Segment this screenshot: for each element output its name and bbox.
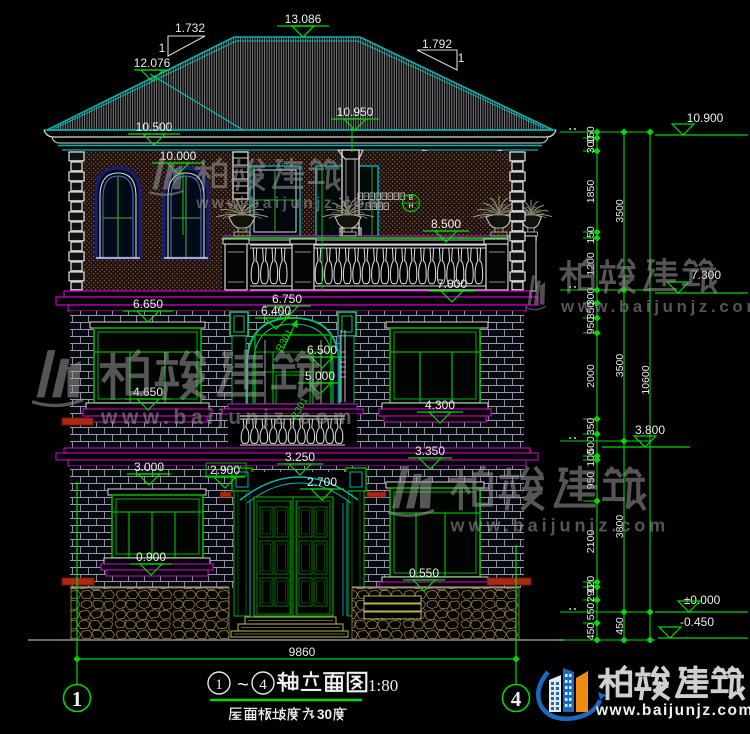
svg-text:1: 1 bbox=[458, 51, 465, 65]
svg-text:3.000: 3.000 bbox=[134, 460, 164, 474]
svg-text:www.baijunjz.com: www.baijunjz.com bbox=[560, 297, 750, 316]
svg-text:www.baijunjz.com: www.baijunjz.com bbox=[450, 515, 670, 535]
svg-text:10.500: 10.500 bbox=[136, 120, 173, 134]
svg-text:4: 4 bbox=[511, 687, 522, 711]
svg-text:±0.000: ±0.000 bbox=[684, 593, 721, 607]
svg-text:100: 100 bbox=[585, 449, 597, 467]
svg-text:550: 550 bbox=[585, 603, 597, 621]
svg-text:1: 1 bbox=[215, 677, 223, 693]
svg-text:450: 450 bbox=[614, 617, 626, 635]
svg-text:1:80: 1:80 bbox=[368, 676, 398, 695]
svg-text:30: 30 bbox=[317, 707, 332, 722]
svg-text:300: 300 bbox=[585, 136, 597, 154]
svg-text:6.650: 6.650 bbox=[133, 297, 163, 311]
svg-text:9860: 9860 bbox=[289, 645, 316, 659]
svg-text:3.800: 3.800 bbox=[635, 423, 665, 437]
svg-text:-0.450: -0.450 bbox=[680, 615, 714, 629]
svg-text:1: 1 bbox=[72, 687, 83, 711]
svg-text:1.792: 1.792 bbox=[422, 37, 452, 51]
svg-text:450: 450 bbox=[585, 623, 597, 641]
svg-text:10.000: 10.000 bbox=[160, 149, 197, 163]
svg-text:8.500: 8.500 bbox=[431, 217, 461, 231]
svg-text:2.700: 2.700 bbox=[307, 475, 337, 489]
svg-text:3.250: 3.250 bbox=[285, 450, 315, 464]
svg-text:7.000: 7.000 bbox=[437, 277, 467, 291]
svg-text:12.076: 12.076 bbox=[134, 56, 171, 70]
svg-text:290: 290 bbox=[585, 585, 597, 603]
svg-text:6.400: 6.400 bbox=[261, 304, 291, 318]
svg-text:10600: 10600 bbox=[640, 365, 652, 394]
svg-text:10.950: 10.950 bbox=[337, 105, 374, 119]
svg-text:~: ~ bbox=[237, 674, 249, 696]
svg-text:150: 150 bbox=[585, 226, 597, 244]
svg-text:1: 1 bbox=[159, 41, 166, 55]
svg-text:H: H bbox=[408, 203, 413, 210]
svg-text:10.900: 10.900 bbox=[687, 111, 724, 125]
svg-text:www.baijunjz.com: www.baijunjz.com bbox=[100, 406, 356, 429]
svg-text:0.900: 0.900 bbox=[136, 550, 166, 564]
svg-text:3.350: 3.350 bbox=[415, 444, 445, 458]
svg-text:13.086: 13.086 bbox=[285, 12, 322, 26]
svg-text:2000: 2000 bbox=[585, 364, 597, 388]
svg-text:3500: 3500 bbox=[614, 354, 626, 378]
svg-text:4: 4 bbox=[259, 677, 267, 693]
svg-text:350: 350 bbox=[585, 418, 597, 436]
svg-text:4.300: 4.300 bbox=[425, 398, 455, 412]
svg-text:B: B bbox=[409, 195, 414, 202]
svg-text:0.550: 0.550 bbox=[409, 566, 439, 580]
svg-text:3500: 3500 bbox=[614, 199, 626, 223]
svg-text:950: 950 bbox=[585, 317, 597, 335]
svg-text:www.baijunjz.com: www.baijunjz.com bbox=[195, 195, 385, 212]
svg-text:2.900: 2.900 bbox=[210, 463, 240, 477]
svg-text:1.732: 1.732 bbox=[175, 21, 205, 35]
svg-text:www.baijunjz.com: www.baijunjz.com bbox=[595, 702, 750, 719]
svg-text:1850: 1850 bbox=[585, 180, 597, 204]
